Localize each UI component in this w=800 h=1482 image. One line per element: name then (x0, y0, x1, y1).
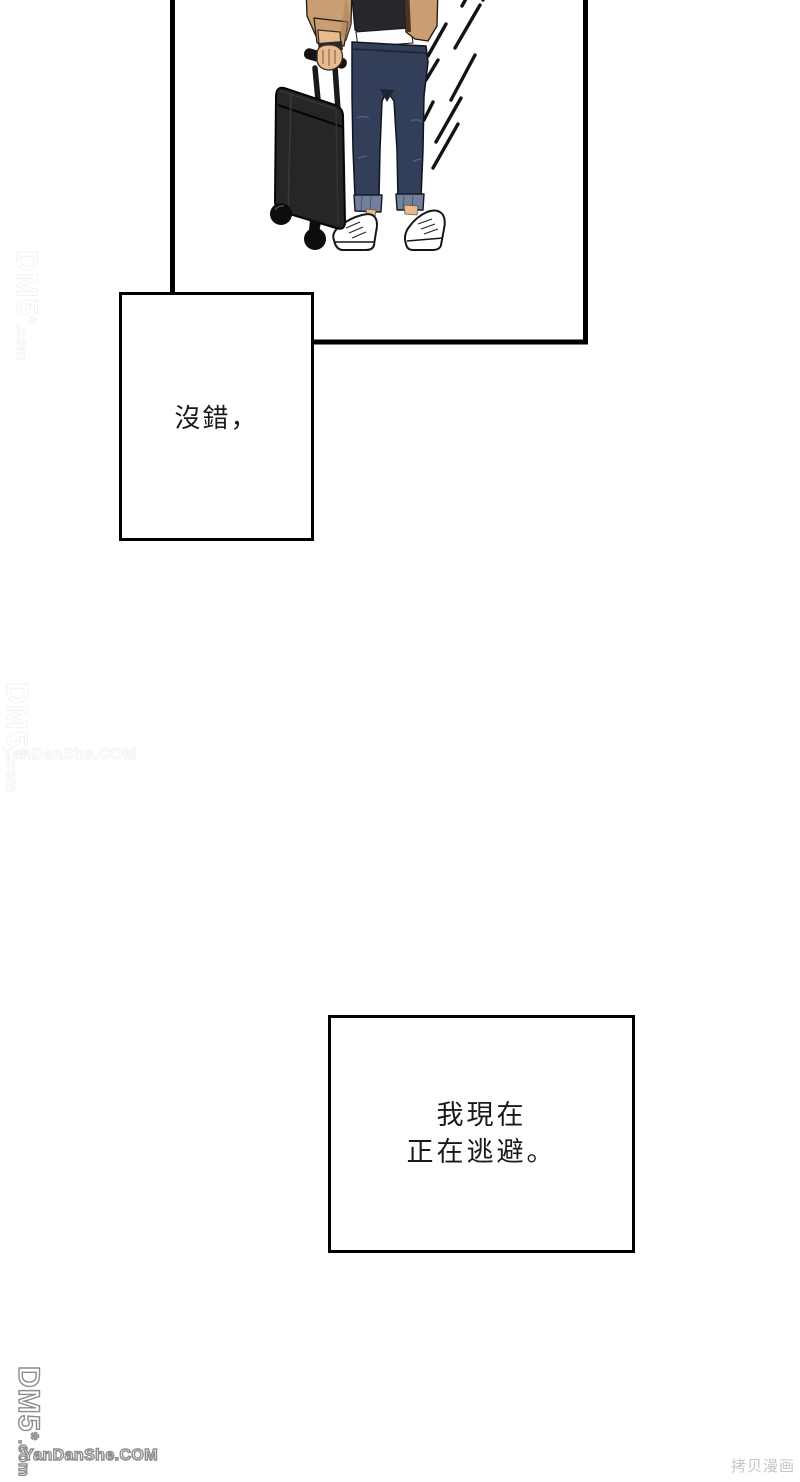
narration-box-1: 沒錯， (119, 292, 314, 541)
narration-line-1: 我現在 (437, 1097, 527, 1134)
dm5-com-text: .com (15, 1440, 32, 1477)
watermark-yandanshe-middle: YanDanShe.COM (2, 746, 137, 764)
watermark-copy-label: 拷贝漫画 (731, 1455, 795, 1476)
ankle-right (404, 205, 418, 215)
watermark-dm5-top: DM5*.com (11, 250, 47, 350)
dm5-logo-text: DM5 (10, 250, 43, 316)
watermark-yandanshe-bottom: YanDanShe.COM (23, 1447, 158, 1465)
comic-page: { "speech_boxes": [ { "text": "沒錯，" }, {… (0, 0, 800, 1482)
dm5-logo-text: DM5 (12, 1366, 45, 1432)
dm5-logo-text: DM5 (0, 682, 33, 748)
hand (317, 30, 343, 70)
narration-line-2: 正在逃避。 (407, 1134, 557, 1171)
wheel-front (304, 228, 326, 250)
dm5-star-mark: * (8, 748, 29, 755)
narration-box-2: 我現在 正在逃避。 (328, 1015, 635, 1253)
narration-text-1: 沒錯， (174, 398, 258, 435)
watermark-dm5-middle: DM5*.com (3, 682, 39, 782)
watermark-dm5-bottom: DM5*.com (11, 1366, 47, 1476)
dm5-com-text: .com (3, 756, 20, 793)
dm5-star-mark: * (18, 316, 39, 323)
dm5-star-mark: * (20, 1432, 41, 1439)
dm5-com-text: .com (13, 324, 30, 361)
